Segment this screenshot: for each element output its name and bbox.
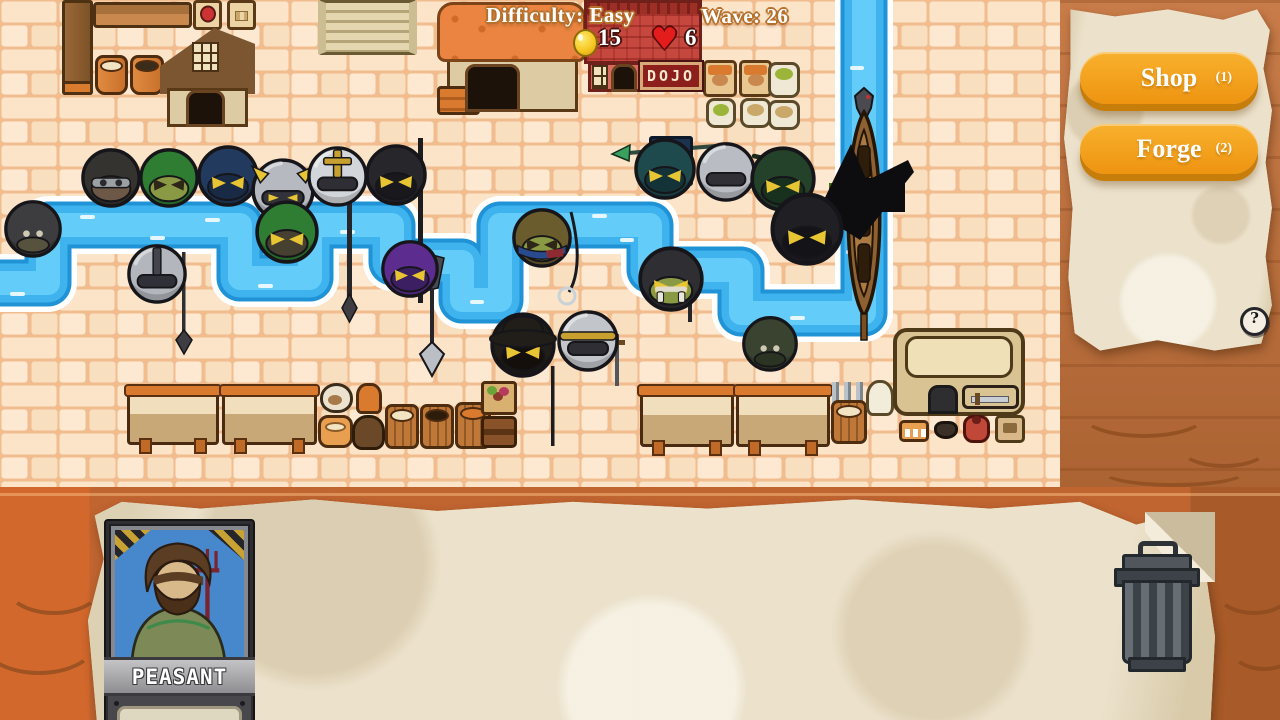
wave-label: Wave: 26 — [701, 4, 788, 29]
unit-rogue[interactable] — [80, 146, 142, 208]
sack-tan — [768, 100, 800, 130]
unit-purple-assassin[interactable] — [380, 238, 440, 298]
calendar-sign — [227, 0, 256, 30]
unit-cross-knight[interactable] — [306, 144, 369, 207]
barrel-open — [420, 404, 454, 449]
jug — [352, 415, 385, 450]
dojo-sign-label: DOJO — [647, 67, 695, 85]
brown-house-door — [186, 90, 225, 127]
pot-dark — [130, 55, 164, 95]
unit-orc-samurai[interactable] — [637, 244, 705, 312]
shop-hotkey: (1) — [1216, 70, 1232, 86]
fence — [222, 385, 317, 445]
bread-box — [899, 420, 929, 442]
fence — [640, 385, 734, 447]
bottom-panel — [88, 495, 1215, 720]
orange-house-door — [465, 64, 520, 112]
game-screen: DOJO 8 Difficulty: Easy Wave: 26 15 ♥ 6 — [0, 0, 1280, 720]
flour-sack — [866, 380, 894, 416]
ladder — [318, 0, 417, 55]
chicken — [320, 383, 353, 413]
forge-door — [928, 385, 958, 414]
forge-roof-panel — [905, 336, 1013, 378]
dojo-sign: DOJO — [640, 62, 702, 90]
unit-sword-helm-knight[interactable] — [126, 242, 188, 304]
card-description: A humble potato farmer. It's not much, — [117, 706, 242, 720]
lives-count: 6 — [685, 25, 697, 51]
dark-bowl — [934, 421, 958, 439]
unit-gray-knight[interactable] — [695, 140, 757, 202]
staff-icon — [551, 366, 555, 446]
brown-house-window — [192, 42, 219, 72]
sword-sign — [962, 385, 1019, 409]
fence — [736, 385, 830, 447]
apple-sign — [193, 0, 222, 30]
selected-unit-card[interactable]: PEASANT A humble potato farmer. It's not… — [104, 519, 255, 720]
unit-hat-rogue[interactable] — [489, 310, 557, 378]
forge-button[interactable]: Forge (2) — [1080, 124, 1258, 174]
barrel — [831, 400, 867, 444]
dojo-door — [611, 64, 637, 92]
dojo-window — [592, 65, 608, 89]
sack-green — [706, 98, 736, 128]
red-pot — [963, 415, 990, 443]
sack-tan — [740, 98, 771, 128]
unit-green-knight[interactable] — [254, 198, 320, 264]
heart-icon: ♥ — [651, 27, 678, 53]
tan-box — [995, 415, 1025, 443]
clay-pot — [318, 415, 353, 448]
pot-cream — [95, 55, 128, 95]
fence — [127, 385, 219, 445]
chest — [481, 416, 517, 448]
card-description-panel: A humble potato farmer. It's not much, — [108, 696, 251, 720]
vegetable-crate — [481, 381, 517, 415]
unit-green-bomber[interactable] — [741, 314, 799, 372]
card-title: PEASANT — [104, 657, 255, 696]
sack-green — [768, 62, 800, 98]
small-figure — [356, 383, 382, 414]
barrel — [385, 404, 419, 449]
forge-button-label: Forge — [1137, 134, 1202, 164]
unit-fisherman[interactable] — [511, 206, 573, 268]
shop-button[interactable]: Shop (1) — [1080, 52, 1258, 104]
unit-black-samurai[interactable] — [769, 190, 845, 266]
wood-beam — [62, 0, 93, 95]
peasant-portrait — [111, 526, 248, 662]
trash-icon[interactable] — [1112, 541, 1198, 671]
forge-hotkey: (2) — [1216, 141, 1232, 157]
unit-green-archer[interactable] — [138, 146, 200, 208]
unit-flag-bearer[interactable] — [633, 136, 697, 200]
unit-black-knight[interactable] — [364, 142, 428, 206]
gold-count: 15 — [598, 25, 621, 51]
coin-icon — [573, 29, 598, 57]
unit-pot-knight[interactable] — [556, 308, 620, 372]
peasant-art — [115, 530, 244, 658]
shop-button-label: Shop — [1141, 63, 1197, 93]
vendor-stand — [703, 60, 737, 97]
help-icon[interactable]: ? — [1240, 307, 1269, 336]
unit-bomb-walker[interactable] — [3, 198, 63, 258]
market-counter — [93, 2, 192, 28]
